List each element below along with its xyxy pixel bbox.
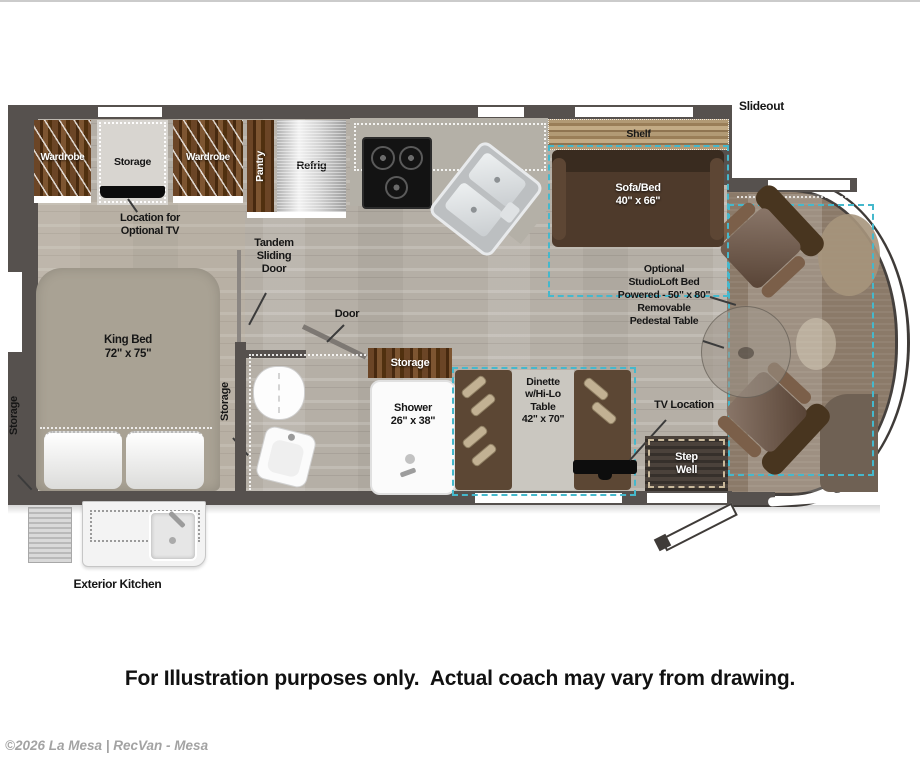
shower-label: Shower 26" x 38" [374,402,452,428]
window-rear [6,272,22,352]
pantry-refrig-sill [247,212,346,218]
shelf-label: Shelf [626,128,650,140]
toilet [253,366,305,420]
wardrobe-left: Wardrobe [34,120,91,196]
step-well-trim [648,439,725,488]
slideout-label: Slideout [739,99,801,113]
entry-door-opening [647,493,727,503]
tandem-sliding-door-track [237,250,241,342]
window [98,107,162,117]
shower-faucet [400,467,417,477]
bath-sink-faucet [287,433,295,441]
exterior-sink-faucet [168,511,186,529]
exterior-kitchen-label: Exterior Kitchen [55,577,180,591]
bath-partition-wall [235,342,246,492]
dinette-tv-mount [598,473,612,480]
exterior-kitchen-sink [149,511,197,561]
exterior-sink-drain [169,537,176,544]
refrigerator: Refrig [277,120,346,212]
watermark: ©2026 La Mesa | RecVan - Mesa [5,738,208,753]
exterior-kitchen-counter [82,501,206,567]
sink-drain [493,176,501,184]
shower-storage-label: Storage [391,357,430,370]
shower: Shower 26" x 38" [370,380,456,495]
step-well: Step Well [645,436,728,491]
rv-floorplan-illustration: Wardrobe Storage Wardrobe Pantry Refrig … [0,0,920,767]
pantry-label: Pantry [254,151,266,182]
tv-location-label: TV Location [648,399,720,412]
disclaimer-text: For Illustration purposes only. Actual c… [0,667,920,691]
wardrobe-left-sill [34,196,91,203]
cab-top-window [768,180,850,190]
refrigerator-shine [277,120,346,212]
toilet-lid-line [278,373,280,413]
bath-sink-bowl [266,439,305,479]
exterior-compartment-door [28,507,72,563]
king-bed-label: King Bed 72" x 75" [60,334,196,361]
optional-tv-note: Location for Optional TV [106,212,194,238]
bath-door-label: Door [327,308,367,321]
wardrobe-right-label: Wardrobe [186,152,230,164]
window [575,107,693,117]
wardrobe-right: Wardrobe [173,120,243,196]
tandem-sliding-door-label: Tandem Sliding Door [244,237,304,276]
pillow [126,431,204,489]
pantry: Pantry [247,120,274,212]
burner [385,176,408,199]
bed-foot-dotted-line [40,427,212,429]
window [478,107,524,117]
wardrobe-right-sill [173,196,243,203]
shower-drain [405,454,415,464]
studioloft-note: Optional StudioLoft Bed Powered - 50" x … [608,263,720,328]
pillow [44,431,122,489]
burner [371,146,395,170]
dinette-tv [573,460,637,474]
shower-overhead-storage: Storage [368,348,452,378]
cooktop [362,137,432,209]
optional-tv [100,186,165,198]
page-top-border [0,0,920,2]
pedestal-base [738,347,754,359]
wardrobe-left-label: Wardrobe [41,152,85,164]
sink-drain [470,206,478,214]
storage-rear-label: Storage [8,358,30,473]
king-bed [36,268,220,491]
dinette-label: Dinette w/Hi-Lo Table 42" x 70" [505,376,581,426]
burner [399,146,423,170]
